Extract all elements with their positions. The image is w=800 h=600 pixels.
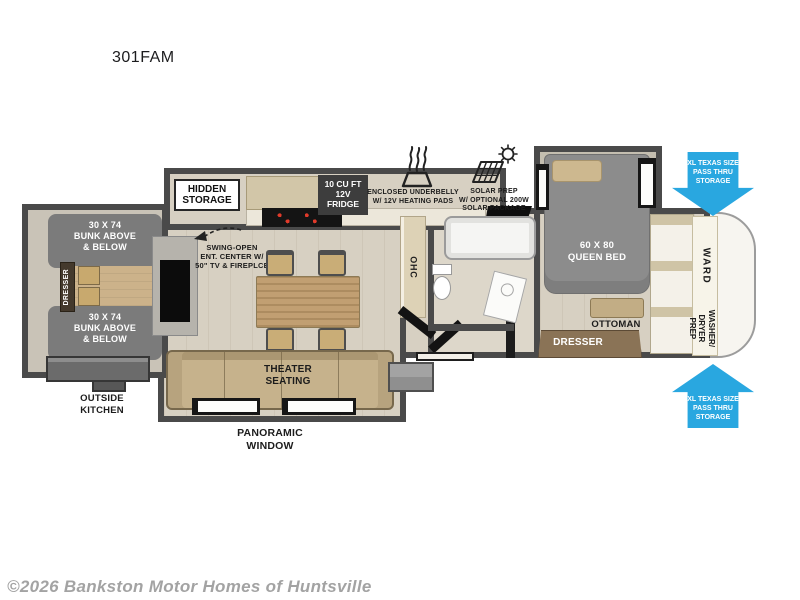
dining-chair: [318, 250, 346, 276]
entry-steps: [388, 362, 434, 392]
panoramic-window-glass: [282, 398, 356, 415]
ottoman: [590, 298, 644, 318]
ward-label: WARD: [699, 248, 711, 285]
wardrobe-label-zone: WARD: [692, 226, 718, 306]
dining-table: [256, 276, 360, 328]
panoramic-window-label: PANORAMIC WINDOW: [200, 427, 340, 453]
bedroom-dresser-label: DRESSER: [540, 337, 616, 349]
hidden-storage-label: HIDDEN STORAGE: [174, 179, 240, 211]
bunk-cabinet: [78, 266, 100, 285]
bathroom-wall: [428, 324, 514, 331]
theater-seating-label: THEATER SEATING: [238, 364, 338, 388]
panoramic-window-glass: [192, 398, 260, 415]
ohc-label: OHC: [408, 256, 419, 278]
dining-chair: [266, 250, 294, 276]
overhead-cabinet: OHC: [400, 216, 426, 318]
pass-thru-arrow-top: XL TEXAS SIZE PASS THRU STORAGE: [672, 152, 754, 216]
bunk-cabinet: [78, 287, 100, 306]
floorplan-title: 301FAM: [112, 49, 175, 67]
dealer-watermark: ©2026 Bankston Motor Homes of Huntsville: [7, 577, 372, 597]
outside-kitchen-compartment: [46, 356, 150, 382]
solar-panel-icon: [468, 144, 518, 188]
outside-kitchen-door: [92, 380, 126, 392]
toilet-tank: [432, 264, 452, 275]
sink-bowl: [499, 282, 515, 298]
washer-dryer-label: WASHER/ DRYER PREP: [688, 309, 717, 346]
bunk-bottom-label: 30 X 74 BUNK ABOVE & BELOW: [48, 312, 162, 345]
ottoman-label: OTTOMAN: [566, 319, 666, 331]
toilet-bowl: [433, 276, 451, 300]
bathtub: [444, 216, 536, 260]
washer-dryer-prep-zone: WASHER/ DRYER PREP: [678, 296, 726, 360]
heating-pads-icon: [396, 146, 438, 188]
bunk-dresser: DRESSER: [60, 262, 75, 312]
pass-thru-arrow-bottom: XL TEXAS SIZE PASS THRU STORAGE: [672, 364, 754, 428]
queen-bed-label: 60 X 80 QUEEN BED: [544, 240, 650, 263]
bedroom-window: [638, 158, 656, 208]
floorplan: 301FAM 30 X 74 BUNK ABOVE & BELOW 30 X 7…: [0, 0, 800, 600]
outside-kitchen-label: OUTSIDE KITCHEN: [52, 393, 152, 416]
swing-open-arrow: [192, 226, 244, 244]
entry-door-sill: [416, 352, 474, 361]
bunk-top-label: 30 X 74 BUNK ABOVE & BELOW: [48, 220, 162, 253]
solar-prep-label: SOLAR PREP W/ OPTIONAL 200W SOLAR PACKAG…: [448, 188, 540, 214]
bunk-dresser-label: DRESSER: [63, 269, 71, 306]
bed-pillow: [552, 160, 602, 182]
